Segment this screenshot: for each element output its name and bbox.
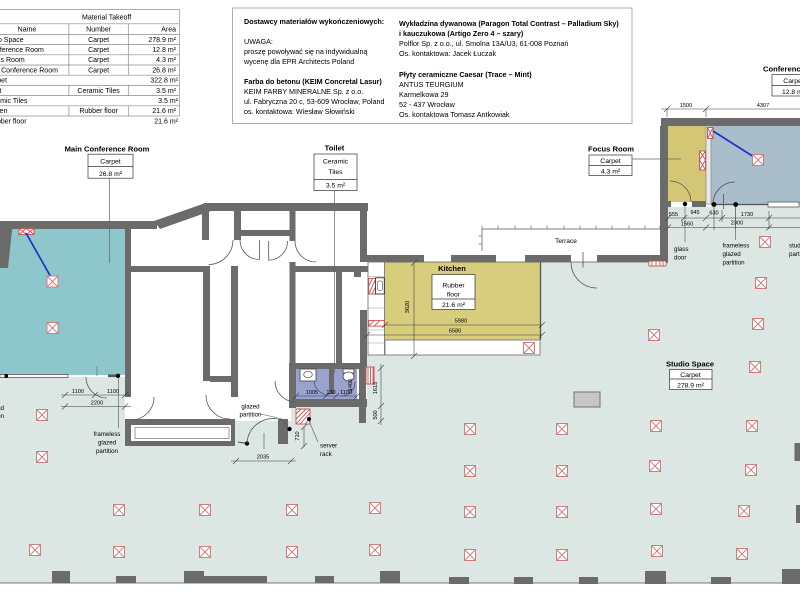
svg-text:945: 945 [690, 210, 699, 216]
svg-text:3620: 3620 [405, 301, 411, 313]
svg-text:door: door [674, 255, 686, 262]
svg-text:21.6 m²: 21.6 m² [154, 118, 178, 125]
svg-text:Carpet: Carpet [0, 78, 7, 85]
svg-text:Toilet: Toilet [325, 144, 345, 153]
svg-text:3.5 m²: 3.5 m² [156, 88, 177, 95]
svg-text:glazed: glazed [723, 251, 742, 258]
svg-text:partition: partition [96, 448, 119, 455]
svg-text:278.9 m²: 278.9 m² [677, 383, 705, 390]
svg-text:partition: partition [723, 260, 746, 267]
svg-text:21.6 m²: 21.6 m² [152, 108, 176, 115]
svg-text:278.9 m²: 278.9 m² [148, 37, 176, 44]
svg-text:Ceramic Tiles: Ceramic Tiles [0, 98, 28, 105]
svg-text:710: 710 [295, 431, 301, 440]
svg-text:52 - 437 Wrocław: 52 - 437 Wrocław [399, 100, 456, 109]
svg-text:Name: Name [18, 27, 37, 34]
svg-text:wycenę dla EPR Architects Pola: wycenę dla EPR Architects Poland [243, 57, 354, 66]
svg-text:ul. Fabryczna 20 c, 53-609 Wro: ul. Fabryczna 20 c, 53-609 Wrocław, Pola… [244, 97, 385, 106]
svg-text:Area: Area [161, 27, 176, 34]
svg-text:5980: 5980 [455, 319, 467, 325]
svg-text:12.8 m²: 12.8 m² [782, 89, 800, 96]
svg-text:Rubber floor: Rubber floor [79, 108, 118, 115]
svg-text:1730: 1730 [741, 212, 753, 218]
svg-text:21.6 m²: 21.6 m² [442, 302, 466, 309]
svg-text:1400: 1400 [348, 379, 354, 391]
svg-text:Carpet: Carpet [600, 158, 621, 165]
svg-text:server: server [320, 443, 337, 450]
svg-text:Carpet: Carpet [783, 78, 800, 85]
svg-text:3.5 m²: 3.5 m² [326, 183, 346, 190]
svg-text:partition: partition [789, 251, 800, 258]
svg-text:ud: ud [0, 405, 5, 412]
svg-text:Karmelkowa 29: Karmelkowa 29 [399, 90, 449, 99]
svg-text:1500: 1500 [680, 103, 692, 109]
svg-text:4.3 m²: 4.3 m² [156, 57, 177, 64]
svg-text:Focus Room: Focus Room [0, 57, 25, 64]
svg-text:Carpet: Carpet [88, 47, 109, 54]
svg-text:6580: 6580 [449, 329, 461, 335]
svg-text:ANTUS TEURGIUM: ANTUS TEURGIUM [399, 80, 464, 89]
svg-text:1100: 1100 [107, 389, 119, 395]
svg-text:500: 500 [373, 410, 379, 419]
svg-text:glazed: glazed [241, 404, 260, 411]
svg-text:Number: Number [86, 27, 112, 34]
svg-text:UWAGA:: UWAGA: [244, 37, 273, 46]
svg-text:3.5 m²: 3.5 m² [158, 98, 179, 105]
svg-text:Os. kontaktowa: Jacek Łuczak: Os. kontaktowa: Jacek Łuczak [399, 49, 496, 58]
svg-text:Studio Space: Studio Space [0, 37, 24, 44]
svg-text:12.8 m²: 12.8 m² [152, 47, 176, 54]
svg-text:Carpet: Carpet [88, 67, 109, 74]
svg-text:4307: 4307 [757, 103, 769, 109]
svg-text:Material Takeoff: Material Takeoff [82, 15, 131, 22]
svg-text:130: 130 [326, 390, 335, 396]
svg-text:Toilet: Toilet [0, 88, 1, 95]
svg-text:Carpet: Carpet [100, 159, 121, 166]
svg-text:Kitchen: Kitchen [438, 264, 466, 273]
svg-text:Dostawcy materiałów wykończeni: Dostawcy materiałów wykończeniowych: [244, 17, 384, 26]
svg-text:frameless: frameless [723, 243, 750, 250]
svg-text:630: 630 [709, 211, 718, 217]
svg-text:Kitchen: Kitchen [0, 108, 7, 115]
svg-text:glass: glass [674, 246, 688, 253]
svg-text:Carpet: Carpet [88, 57, 109, 64]
svg-text:os. kontaktowa: Wiesław Słowiń: os. kontaktowa: Wiesław Słowiński [244, 107, 355, 116]
svg-text:2200: 2200 [91, 401, 103, 407]
svg-text:Ceramic: Ceramic [323, 159, 349, 166]
svg-text:Conference Room: Conference Room [0, 47, 44, 54]
svg-text:Polflor Sp. z o.o., ul. Smolna: Polflor Sp. z o.o., ul. Smolna 13A/U3, 6… [399, 39, 568, 48]
svg-text:1615: 1615 [373, 382, 379, 394]
svg-text:2300: 2300 [731, 221, 743, 227]
svg-text:Carpet: Carpet [88, 37, 109, 44]
svg-text:floor: floor [447, 292, 461, 299]
svg-text:Main Conference Room: Main Conference Room [65, 145, 150, 154]
svg-text:Carpet: Carpet [680, 372, 701, 379]
svg-text:26.8 m²: 26.8 m² [152, 67, 176, 74]
svg-text:555: 555 [669, 212, 678, 218]
svg-text:i kauczukowa (Artigo Zero 4 –: i kauczukowa (Artigo Zero 4 – szary) [399, 29, 524, 38]
svg-text:Studio Space: Studio Space [666, 360, 714, 369]
svg-text:Ceramic Tiles: Ceramic Tiles [77, 88, 120, 95]
svg-text:1005: 1005 [306, 390, 318, 396]
svg-text:on: on [0, 413, 5, 420]
svg-text:frameless: frameless [94, 431, 121, 438]
svg-text:322.8 m²: 322.8 m² [150, 78, 178, 85]
svg-text:partition: partition [239, 412, 262, 419]
svg-text:Terrace: Terrace [555, 238, 577, 245]
svg-text:Rubber floor: Rubber floor [0, 118, 27, 125]
svg-text:glazed: glazed [98, 440, 117, 447]
svg-text:studio: studio [789, 243, 800, 250]
svg-text:Rubber: Rubber [442, 283, 465, 290]
svg-text:rack: rack [320, 451, 333, 458]
svg-text:Main Conference Room: Main Conference Room [0, 67, 58, 74]
svg-text:Focus Room: Focus Room [588, 145, 634, 154]
svg-text:Os. kontaktowa Tomasz Antkowia: Os. kontaktowa Tomasz Antkowiak [399, 110, 510, 119]
svg-text:Conference Room: Conference Room [763, 65, 800, 74]
svg-text:Płyty ceramiczne Caesar (Trace: Płyty ceramiczne Caesar (Trace – Mint) [399, 70, 532, 79]
svg-text:Wykładzina dywanowa (Paragon T: Wykładzina dywanowa (Paragon Total Contr… [399, 19, 619, 28]
svg-text:2035: 2035 [257, 455, 269, 461]
svg-text:KEIM FARBY MINERALNE Sp. z o.o: KEIM FARBY MINERALNE Sp. z o.o. [244, 87, 363, 96]
svg-text:26.8 m²: 26.8 m² [99, 171, 123, 178]
svg-text:1100: 1100 [72, 389, 84, 395]
svg-text:4.3 m²: 4.3 m² [601, 169, 621, 176]
svg-text:proszę powoływać się na indywi: proszę powoływać się na indywidualną [244, 47, 367, 56]
svg-text:1560: 1560 [681, 222, 693, 228]
svg-text:Farba do betonu (KEIM Concreta: Farba do betonu (KEIM Concretal Lasur) [244, 77, 382, 86]
svg-text:Tiles: Tiles [328, 169, 343, 176]
